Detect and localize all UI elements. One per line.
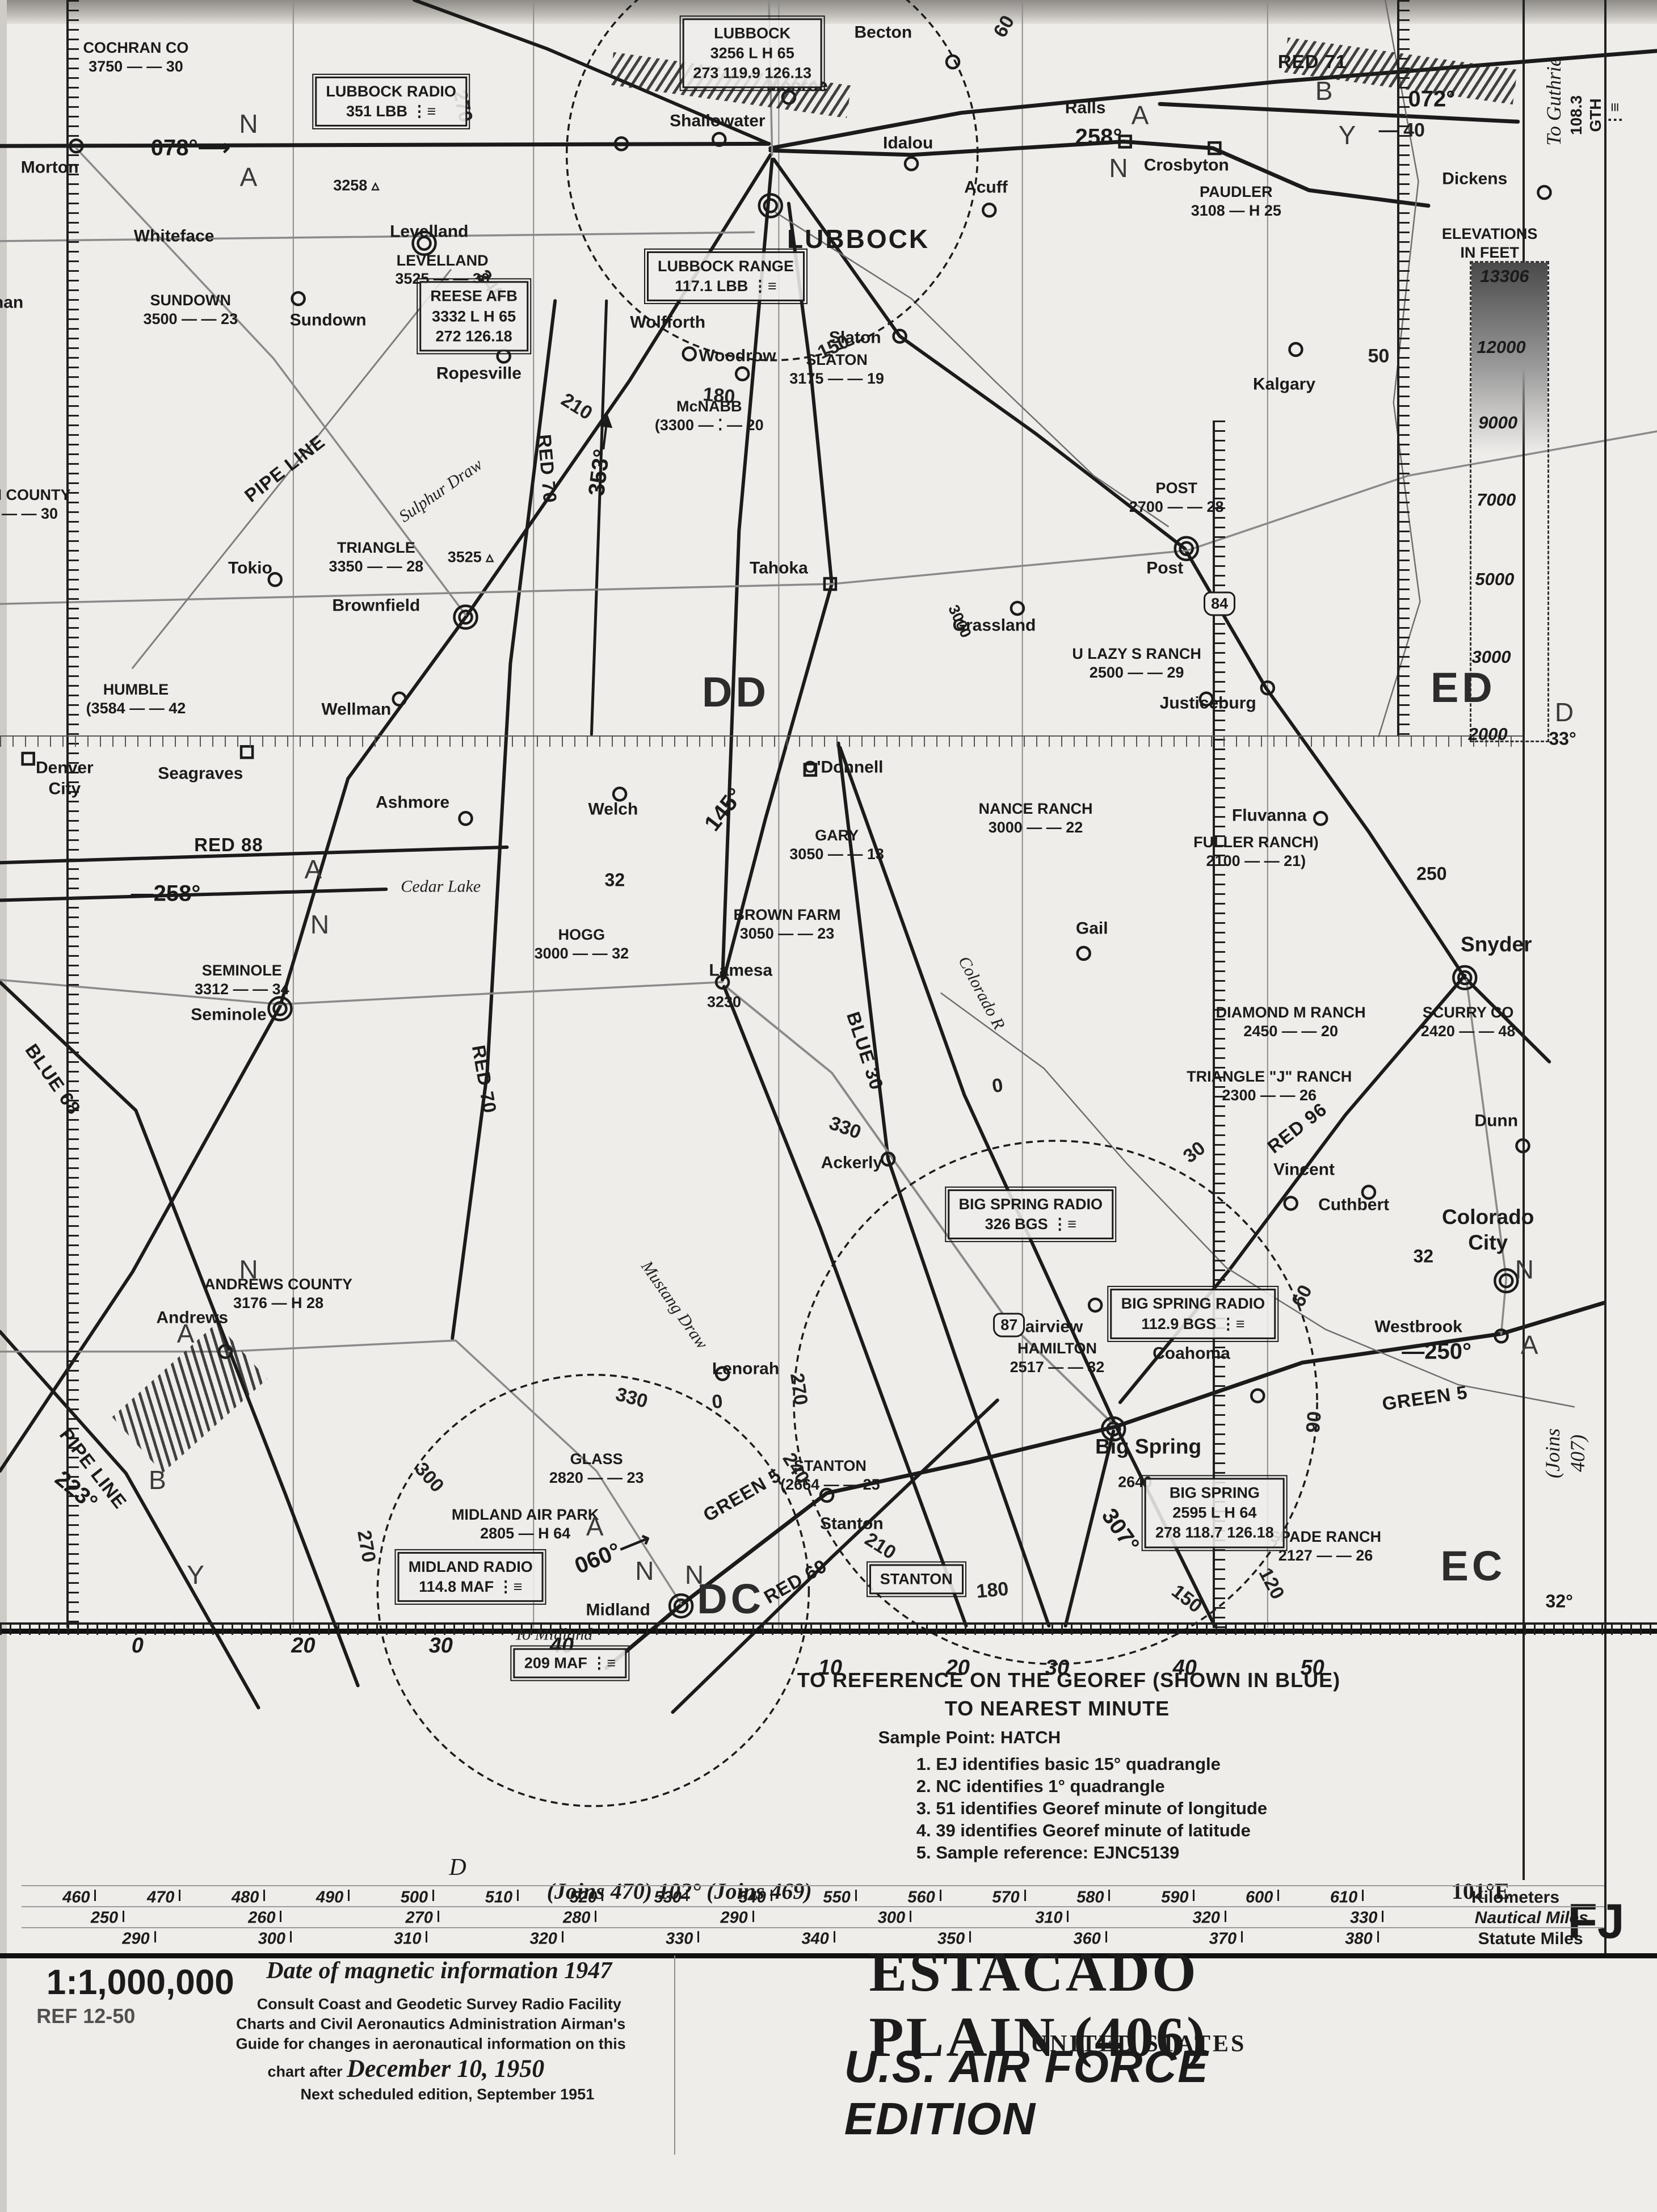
- label-big-spring: Big Spring: [1095, 1434, 1201, 1460]
- scalebar-tick: [1024, 1890, 1026, 1901]
- label-humble-3584-42: HUMBLE (3584 — — 42: [86, 680, 186, 718]
- label-n: N: [239, 108, 258, 140]
- label-dd: DD: [702, 667, 769, 718]
- label-colorado-city: Colorado City: [1442, 1204, 1534, 1255]
- scalebar-tick: [686, 1890, 688, 1901]
- consult-note-line-3: Guide for changes in aeronautical inform…: [236, 2035, 626, 2053]
- scalebar-tick: [834, 1931, 835, 1942]
- label-d: D: [1555, 696, 1574, 728]
- label-3258: 3258 ▵: [333, 176, 379, 195]
- town-marker-37: [23, 753, 34, 764]
- label-wellman: Wellman: [321, 700, 391, 721]
- label-lubbock: LUBBOCK: [787, 223, 930, 255]
- label-westbrook: Westbrook: [1374, 1317, 1462, 1338]
- scalebar-value: 540: [738, 1888, 766, 1907]
- town-circle: [613, 788, 626, 800]
- label-brownfield: Brownfield: [332, 596, 420, 617]
- town-marker-31: [1289, 343, 1302, 356]
- scalebar-tick: [154, 1931, 156, 1942]
- label-vincent: Vincent: [1273, 1160, 1335, 1181]
- elevation-value: 5000: [1475, 569, 1514, 590]
- label-ed: ED: [1431, 662, 1496, 713]
- next-edition-note: Next scheduled edition, September 1951: [301, 2086, 595, 2104]
- scalebar-value: 580: [1076, 1888, 1104, 1907]
- elevation-value: 2000: [1469, 724, 1508, 745]
- town-circle: [905, 157, 918, 170]
- label-scurry-co-2420-48: SCURRY CO 2420 — — 48: [1421, 1003, 1516, 1041]
- highway-shield-84: 84: [1204, 592, 1235, 616]
- label-post: Post: [1146, 558, 1183, 579]
- scalebar-tick: [348, 1890, 350, 1901]
- town-marker-18: [613, 788, 626, 800]
- scalebar-value: 570: [992, 1888, 1019, 1907]
- label-250: —250°: [1402, 1338, 1471, 1365]
- scalebar-value: 300: [878, 1909, 905, 1928]
- label-3230: 3230: [707, 993, 741, 1011]
- label-a: A: [1132, 99, 1149, 131]
- label-acuff: Acuff: [964, 178, 1008, 199]
- scalebar-tick: [263, 1890, 265, 1901]
- town-marker-38: [241, 746, 253, 758]
- town-marker-14: [1011, 602, 1024, 615]
- town-circle: [683, 348, 696, 360]
- scalebar-tick: [438, 1911, 439, 1922]
- scalebar-rule-1: [22, 1885, 1604, 1886]
- label-o-donnell: O'Donnell: [804, 757, 883, 778]
- scalebar-value: 490: [316, 1888, 343, 1907]
- label-tokio: Tokio: [228, 558, 272, 579]
- scalebar-tick: [1362, 1890, 1364, 1901]
- label-nan: nan: [0, 293, 23, 314]
- label-snyder: Snyder: [1461, 932, 1532, 957]
- label-fluvanna: Fluvanna: [1232, 806, 1307, 827]
- scalebar-value: 330: [666, 1929, 693, 1948]
- label-nance-ranch-3000-22: NANCE RANCH 3000 — — 22: [979, 800, 1093, 837]
- neatline-right-outer: [1604, 0, 1606, 1956]
- town-circle: [460, 812, 472, 825]
- scalebar-tick: [1193, 1890, 1195, 1901]
- label-dunn: Dunn: [1474, 1111, 1518, 1132]
- label-a: A: [177, 1318, 195, 1349]
- label-red-71: RED 71: [1278, 51, 1347, 73]
- label-3525: 3525 ▵: [448, 548, 494, 567]
- town-circle: [736, 368, 748, 380]
- town-circle: [1289, 343, 1302, 356]
- label-kalgary: Kalgary: [1253, 375, 1315, 396]
- scalebar-value: 320: [530, 1929, 557, 1948]
- label-cedar-lake: Cedar Lake: [401, 877, 481, 898]
- town-marker-20: [1314, 812, 1327, 825]
- label-cochran-co-3750-30: COCHRAN CO 3750 — — 30: [83, 39, 188, 76]
- scalebar-value: 330: [1350, 1909, 1377, 1928]
- town-marker-11: [736, 368, 748, 380]
- label-dc: DC: [697, 1574, 764, 1625]
- airway-353: [591, 301, 606, 734]
- rail-post-snyder: [774, 159, 1550, 1062]
- label-lenorah: Lenorah: [712, 1359, 779, 1380]
- town-circle: [1538, 186, 1550, 199]
- town-circle: [983, 204, 995, 216]
- label-a: A: [586, 1511, 604, 1542]
- elevation-value: 12000: [1477, 337, 1525, 358]
- label-to-guthrie: To Guthrie: [1542, 57, 1567, 146]
- label-n: N: [635, 1555, 654, 1587]
- label-32: 32: [1413, 1246, 1433, 1268]
- label-n: N: [239, 1254, 258, 1285]
- label-30: 30: [429, 1633, 453, 1659]
- town-marker-7: [1538, 186, 1550, 199]
- scalebar-tick: [123, 1911, 124, 1922]
- scalebar-tick: [517, 1890, 519, 1901]
- scalebar-value: 470: [147, 1888, 174, 1907]
- elevation-value: 9000: [1478, 412, 1517, 434]
- scalebar-tick: [290, 1931, 292, 1942]
- label-0: 0: [132, 1633, 144, 1659]
- label-50: 50: [1368, 344, 1390, 368]
- scalebar-tick: [752, 1911, 754, 1922]
- scalebar-tick: [432, 1890, 434, 1901]
- georef-sample-point: Sample Point: HATCH: [878, 1727, 1061, 1748]
- label-levelland: Levelland: [390, 222, 468, 243]
- scalebar-value: 290: [122, 1929, 149, 1948]
- scalebar-tick: [940, 1890, 941, 1901]
- label-40: — 40: [1379, 119, 1425, 142]
- scalebar-tick: [280, 1911, 281, 1922]
- label-258: —258°: [131, 880, 201, 907]
- town-circle: [1089, 1299, 1101, 1311]
- label-paudler-3108-h-25: PAUDLER 3108 — H 25: [1191, 183, 1281, 220]
- label-sundown: Sundown: [290, 310, 367, 331]
- town-circle: [1251, 1390, 1264, 1402]
- scalebar-unit-label: Nautical Miles: [1475, 1908, 1588, 1928]
- label-spade-ranch-2127-26: SPADE RANCH 2127 — — 26: [1270, 1528, 1381, 1565]
- scalebar-rule-bottom: [0, 1953, 1657, 1958]
- label-brown-farm-3050-23: BROWN FARM 3050 — — 23: [734, 906, 841, 943]
- label-32: 32°: [1546, 1591, 1573, 1613]
- label-n: N: [1515, 1254, 1534, 1285]
- label-b: B: [149, 1464, 166, 1496]
- scalebar-value: 260: [248, 1909, 275, 1928]
- label-a: A: [1521, 1329, 1538, 1361]
- consult-note-line-2: Charts and Civil Aeronautics Administrat…: [236, 2015, 625, 2033]
- label-072: 072°: [1408, 86, 1456, 113]
- scalebar-value: 550: [823, 1888, 850, 1907]
- scalebar-value: 310: [1035, 1909, 1062, 1928]
- label-ropesville: Ropesville: [436, 363, 522, 384]
- town-marker-26: [1251, 1390, 1264, 1402]
- georef-minute-ruler-ne: [1397, 0, 1410, 737]
- label-gary-3050-13: GARY 3050 — — 13: [789, 826, 884, 864]
- town-marker-17: [460, 812, 472, 825]
- label-33: 33°: [1549, 727, 1576, 750]
- georef-item-2: 2. NC identifies 1° quadrangle: [916, 1776, 1165, 1797]
- scalebar-tick: [855, 1890, 857, 1901]
- scalebar-value: 460: [62, 1888, 90, 1907]
- town-marker-5: [905, 157, 918, 170]
- highway-shield-87: 87: [993, 1313, 1025, 1337]
- label-idalou: Idalou: [883, 133, 933, 154]
- scalebar-value: 560: [907, 1888, 935, 1907]
- label-y: Y: [187, 1559, 204, 1591]
- label-fairview: Fairview: [1015, 1317, 1083, 1338]
- label-lamesa: Lamesa: [709, 961, 772, 982]
- town-circle: [947, 56, 959, 68]
- label-triangle-3350-28: TRIANGLE 3350 — — 28: [329, 539, 424, 576]
- town-circle: [393, 693, 406, 705]
- scalebar-unit-label: Kilometers: [1471, 1888, 1559, 1907]
- magnetic-info-note: Date of magnetic information 1947: [266, 1957, 612, 1984]
- town-marker-8: [292, 292, 305, 305]
- scalebar-value: 280: [563, 1909, 590, 1928]
- facility-box-label-209-maf: 209 MAF ⋮≡: [514, 1649, 626, 1679]
- label-midland: Midland: [586, 1600, 650, 1621]
- scalebar-tick: [1277, 1890, 1279, 1901]
- chart-after-date: December 10, 1950: [347, 2054, 544, 2082]
- town-marker-22: [1285, 1197, 1297, 1210]
- label-diamond-m-ranch-2450-20: DIAMOND M RANCH 2450 — — 20: [1216, 1003, 1366, 1041]
- chart-after-prefix: chart after: [267, 2063, 342, 2080]
- scalebar-tick: [771, 1890, 772, 1901]
- label-ackerly: Ackerly: [821, 1153, 882, 1174]
- town-circle: [1285, 1197, 1297, 1210]
- label-joins-407: (Joins 407): [1541, 1408, 1591, 1499]
- label-wolfforth: Wolfforth: [630, 313, 705, 334]
- airway-078: [0, 144, 769, 146]
- label-shallowater: Shallowater: [670, 111, 765, 132]
- scalebar-tick: [1225, 1911, 1226, 1922]
- facility-box-label-big-spring-2595-l-h-64-278-1: BIG SPRING 2595 L H 64 278 118.7 126.18: [1145, 1478, 1285, 1548]
- label-midland-air-park-2805-h-64: MIDLAND AIR PARK 2805 — H 64: [452, 1505, 599, 1543]
- road-lamesa-w: [0, 980, 722, 1004]
- chart-after-note: chart after December 10, 1950: [267, 2054, 544, 2083]
- label-a: A: [305, 853, 322, 885]
- label-glass-2820-23: GLASS 2820 — — 23: [549, 1450, 644, 1487]
- label-b: B: [1315, 75, 1333, 107]
- label-n: N: [310, 909, 329, 940]
- town-marker-4: [947, 56, 959, 68]
- scalebar-tick: [1108, 1890, 1110, 1901]
- town-marker-16: [393, 693, 406, 705]
- road-post-tahoka: [832, 551, 1185, 584]
- facility-box-label-lubbock-radio-351-lbb: LUBBOCK RADIO 351 LBB ⋮≡: [315, 77, 467, 127]
- label-sundown-3500-23: SUNDOWN 3500 — — 23: [143, 291, 238, 329]
- scalebar-tick: [426, 1931, 427, 1942]
- label-denver-city: Denver City: [36, 758, 94, 800]
- town-marker-27: [1089, 1299, 1101, 1311]
- consult-note-line-1: Consult Coast and Geodetic Survey Radio …: [257, 1995, 621, 2013]
- label-ashmore: Ashmore: [376, 793, 449, 814]
- georef-heading-2: TO NEAREST MINUTE: [945, 1697, 1170, 1721]
- latitude-tick-ruler-left: [66, 0, 79, 1628]
- town-circle: [292, 292, 305, 305]
- label-ralls: Ralls: [1065, 98, 1106, 119]
- label-woodrow: Woodrow: [699, 346, 776, 367]
- label-red-88: RED 88: [194, 834, 263, 856]
- label-n: N: [685, 1559, 704, 1591]
- label-seminole: Seminole: [191, 1005, 266, 1026]
- georef-item-5: 5. Sample reference: EJNC5139: [916, 1843, 1180, 1863]
- latitude-33-ruler: [0, 735, 1523, 747]
- scalebar-unit-label: Statute Miles: [1478, 1929, 1583, 1949]
- scalebar-tick: [562, 1931, 563, 1942]
- ref-number: REF 12-50: [36, 2004, 135, 2028]
- scalebar-tick: [179, 1890, 180, 1901]
- title-block-divider: [674, 1956, 675, 2155]
- label-32: 32: [605, 869, 625, 891]
- label-0: 0: [711, 1390, 724, 1415]
- elevation-legend-title: ELEVATIONS IN FEET: [1442, 225, 1538, 262]
- town-marker-10: [683, 348, 696, 360]
- label-whiteface: Whiteface: [134, 226, 215, 247]
- scalebar-value: 610: [1330, 1888, 1357, 1907]
- scalebar-tick: [697, 1931, 699, 1942]
- label-250: 250: [1416, 863, 1446, 885]
- chart-edition: U.S. AIR FORCE EDITION: [844, 2041, 1386, 2145]
- label-078: 078°⟶: [151, 134, 230, 162]
- town-marker-19: [1078, 947, 1090, 960]
- facility-box-label-lubbock-3256-l-h-65-273-119-: LUBBOCK 3256 L H 65 273 119.9 126.13: [682, 18, 822, 88]
- facility-box-label-stanton: STANTON: [869, 1565, 964, 1595]
- label-108-3-gth: 108.3 GTH ⋮≡: [1567, 85, 1625, 146]
- label-seminole-3312-34: SEMINOLE 3312 — — 34: [195, 961, 289, 999]
- scalebar-value: 500: [401, 1888, 428, 1907]
- scalebar-value: 340: [801, 1929, 828, 1948]
- label-a: A: [240, 161, 258, 193]
- label-morton: Morton: [21, 158, 79, 179]
- scalebar-value: 520: [570, 1888, 597, 1907]
- label-y: Y: [1339, 119, 1356, 151]
- scalebar-tick: [1382, 1911, 1383, 1922]
- rail-west: [0, 232, 754, 241]
- label-cuthbert: Cuthbert: [1318, 1195, 1389, 1216]
- label-tahoka: Tahoka: [750, 558, 808, 579]
- scalebar-value: 310: [394, 1929, 421, 1948]
- label-258: 258°: [1075, 123, 1122, 151]
- label-gail: Gail: [1076, 919, 1108, 940]
- facility-box-label-reese-afb-3332-l-h-65-272-12: REESE AFB 3332 L H 65 272 126.18: [419, 281, 528, 351]
- label-180: 180: [702, 383, 736, 409]
- label-270: 270: [785, 1372, 813, 1407]
- georef-item-4: 4. 39 identifies Georef minute of latitu…: [916, 1820, 1251, 1841]
- label-180: 180: [975, 1578, 1010, 1604]
- label-fuller-ranch-2100-21: FULLER RANCH) 2100 — — 21): [1193, 833, 1318, 870]
- scalebar-tick: [910, 1911, 911, 1922]
- town-circle: [764, 200, 777, 212]
- scalebar-value: 590: [1161, 1888, 1188, 1907]
- town-marker-9: [498, 350, 510, 363]
- label-90: 90: [1301, 1411, 1327, 1434]
- facility-box-label-lubbock-range-117-1-lbb: LUBBOCK RANGE 117.1 LBB ⋮≡: [647, 251, 805, 301]
- label-coahoma: Coahoma: [1153, 1343, 1230, 1364]
- label-post-2700-28: POST 2700 — — 28: [1129, 479, 1224, 516]
- scalebar-value: 300: [258, 1929, 285, 1948]
- scalebar-value: 290: [720, 1909, 747, 1928]
- town-circle: [1078, 947, 1090, 960]
- label-hogg-3000-32: HOGG 3000 — — 32: [535, 926, 629, 964]
- elevation-value: 7000: [1477, 489, 1516, 511]
- label-seagraves: Seagraves: [158, 764, 243, 785]
- scalebar-value: 510: [485, 1888, 512, 1907]
- town-circle: [1011, 602, 1024, 615]
- town-circle: [1314, 812, 1327, 825]
- elevation-value: 13306: [1480, 266, 1529, 287]
- label-dickens: Dickens: [1442, 169, 1507, 190]
- label-triangle-j-ranch-2300-26: TRIANGLE "J" RANCH 2300 — — 26: [1187, 1067, 1352, 1105]
- georef-letter-d: D: [449, 1854, 466, 1881]
- georef-item-3: 3. 51 identifies Georef minute of longit…: [916, 1798, 1267, 1819]
- scalebar-tick: [1067, 1911, 1069, 1922]
- facility-box-label-big-spring-radio-112-9-bgs: BIG SPRING RADIO 112.9 BGS ⋮≡: [1111, 1289, 1276, 1339]
- label-andrews-county-3176-h-28: ANDREWS COUNTY 3176 — H 28: [204, 1275, 352, 1313]
- label-20: 20: [291, 1633, 315, 1659]
- scalebar-tick: [595, 1911, 596, 1922]
- scalebar-value: 600: [1246, 1888, 1273, 1907]
- label-u-lazy-s-ranch-2500-29: U LAZY S RANCH 2500 — — 29: [1072, 645, 1201, 682]
- label-hamilton-2517-32: HAMILTON 2517 — — 32: [1010, 1339, 1105, 1377]
- longitude-tick-ruler-bottom: [0, 1622, 1657, 1635]
- scalebar-value: 530: [654, 1888, 682, 1907]
- label-welch: Welch: [588, 799, 638, 820]
- town-marker-6: [983, 204, 995, 216]
- scalebar-value: 270: [406, 1909, 433, 1928]
- label-crosbyton: Crosbyton: [1144, 155, 1229, 176]
- label-becton: Becton: [855, 23, 912, 44]
- label-ec: EC: [1440, 1541, 1505, 1592]
- label-n: N: [1109, 152, 1128, 184]
- road-post-e: [1187, 431, 1657, 551]
- aeronautical-chart-sheet: ELEVATIONS IN FEET 13306 12000 9000 7000…: [0, 0, 1657, 2212]
- scalebar-value: 480: [232, 1888, 259, 1907]
- town-circle: [498, 350, 510, 363]
- scalebar-tick: [602, 1890, 603, 1901]
- facility-box-label-big-spring-radio-326-bgs: BIG SPRING RADIO 326 BGS ⋮≡: [948, 1189, 1113, 1239]
- label-m-county-30: M COUNTY — — 30: [0, 486, 71, 523]
- scalebar-value: 320: [1193, 1909, 1220, 1928]
- georef-heading-1: TO REFERENCE ON THE GEOREF (SHOWN IN BLU…: [797, 1668, 1340, 1692]
- scale-ratio: 1:1,000,000: [47, 1962, 234, 2003]
- town-square: [241, 746, 253, 758]
- scalebar-value: 250: [91, 1909, 118, 1928]
- label-justiceburg: Justiceburg: [1160, 693, 1256, 714]
- town-square: [23, 753, 34, 764]
- scalebar-tick: [94, 1890, 96, 1901]
- georef-item-1: 1. EJ identifies basic 15° quadrangle: [916, 1754, 1221, 1774]
- airway-258e: [771, 142, 1428, 206]
- facility-box-label-midland-radio-114-8-maf: MIDLAND RADIO 114.8 MAF ⋮≡: [398, 1552, 544, 1602]
